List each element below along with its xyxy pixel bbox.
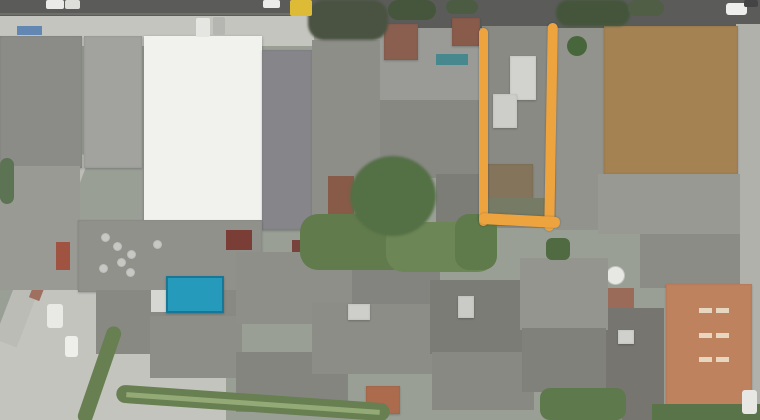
brown-roof-b	[452, 18, 480, 46]
round-bush	[567, 36, 587, 56]
roof-vent	[128, 251, 135, 258]
tree-canopy-e	[628, 0, 664, 16]
building-block-f2	[640, 234, 740, 288]
roof-tile-2	[150, 316, 242, 378]
terracotta-skylight	[699, 357, 712, 362]
terracotta-roof	[666, 284, 752, 410]
roof-tile-9	[520, 258, 608, 330]
aerial-photo	[0, 0, 760, 420]
roof-vent	[100, 265, 107, 272]
marked-lot-building-b	[493, 94, 517, 128]
pool-deck	[151, 290, 167, 312]
white-warehouse-roof	[144, 36, 262, 222]
blue-awning	[17, 26, 42, 35]
roof-tile-7	[430, 280, 522, 354]
roof-vent	[114, 243, 121, 250]
white-roof-bit-a	[348, 304, 370, 320]
car-on-road-c	[263, 0, 280, 8]
car-parked-b	[213, 17, 225, 35]
annotation-left-line	[479, 28, 488, 226]
white-roof-bit-b	[458, 296, 474, 318]
tree-canopy-c	[446, 0, 478, 14]
dirt-lot	[604, 26, 738, 174]
red-roof-bit-a	[226, 230, 252, 250]
tree-canopy-b	[388, 0, 436, 20]
terracotta-skylight	[716, 357, 729, 362]
roof-tile-8	[432, 352, 534, 410]
teal-roof-strip	[436, 54, 468, 65]
roof-vent	[127, 269, 134, 276]
brown-roof-a	[384, 24, 418, 60]
green-patch-a	[540, 388, 626, 420]
building-block-f	[598, 174, 740, 234]
car-street-right	[742, 390, 757, 414]
large-tree	[350, 156, 436, 236]
tree-canopy-d	[556, 0, 630, 26]
car-plaza-b	[65, 336, 78, 357]
terracotta-skylight	[716, 333, 729, 338]
roof-vent	[118, 259, 125, 266]
road-lane-line	[0, 13, 310, 15]
car-on-road-a	[46, 0, 64, 9]
terracotta-skylight	[699, 308, 712, 313]
swimming-pool	[166, 276, 224, 313]
building-block-left	[0, 36, 82, 168]
building-block-b	[262, 50, 312, 230]
roof-vent	[102, 234, 109, 241]
car-parked-a	[196, 18, 210, 37]
water-tank	[607, 267, 624, 284]
yellow-truck	[290, 0, 312, 16]
small-green-yard	[546, 238, 570, 260]
car-on-road-e	[744, 0, 758, 7]
terracotta-skylight	[716, 308, 729, 313]
tree-canopy-a	[308, 0, 388, 40]
red-patch-left	[56, 242, 70, 270]
roof-vent	[154, 241, 161, 248]
roof-tile-5	[312, 302, 434, 374]
white-roof-bit-c	[618, 330, 634, 344]
tree-left-edge	[0, 158, 14, 204]
car-on-road-b	[65, 0, 80, 9]
car-plaza-a	[47, 304, 63, 328]
terracotta-skylight	[699, 333, 712, 338]
ribbed-factory-roof	[84, 36, 142, 168]
roof-tile-10	[522, 328, 606, 392]
